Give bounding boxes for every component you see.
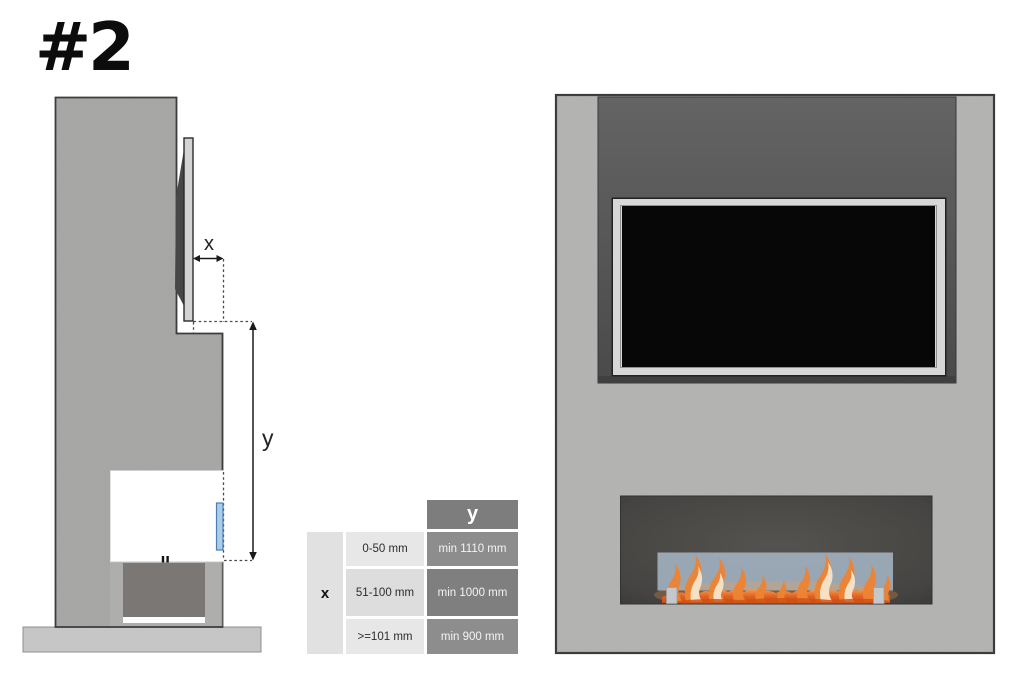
table-value-cell: min 1000 mm (427, 569, 518, 616)
x-dimension-arrow (193, 255, 224, 262)
table-range-cell: 0-50 mm (346, 532, 424, 566)
clearance-spec-table: y x 0-50 mm min 1110 mm 51-100 mm min 10… (307, 500, 518, 654)
side-view-floor (23, 627, 261, 652)
table-range-cell: 51-100 mm (346, 569, 424, 616)
table-value-cell: min 1110 mm (427, 532, 518, 566)
y-dimension-label: y (262, 425, 274, 451)
front-view (556, 95, 994, 653)
side-view-recess-baseboard (123, 617, 205, 623)
table-range-cell: >=101 mm (346, 619, 424, 654)
figure-canvas: #2 (0, 0, 1024, 693)
x-dimension-label: x (204, 233, 214, 255)
table-row-header-x: x (307, 532, 343, 654)
side-view-glass-pane (217, 503, 224, 550)
y-dimension-line (249, 322, 257, 561)
burner-bracket-left (667, 588, 678, 604)
tv-screen (622, 206, 935, 367)
table-col-header-y: y (427, 500, 518, 529)
side-view-cavity (110, 470, 224, 563)
burner-bracket-right (874, 588, 885, 604)
side-view: x y (23, 98, 274, 653)
burner-mark-right (166, 556, 168, 563)
side-view-recess (123, 563, 205, 617)
burner-mark-left (162, 556, 164, 563)
side-view-tv-panel (184, 138, 193, 321)
tv-niche-bottom-shadow (598, 376, 956, 383)
fireplace-interior (654, 553, 898, 610)
table-value-cell: min 900 mm (427, 619, 518, 654)
